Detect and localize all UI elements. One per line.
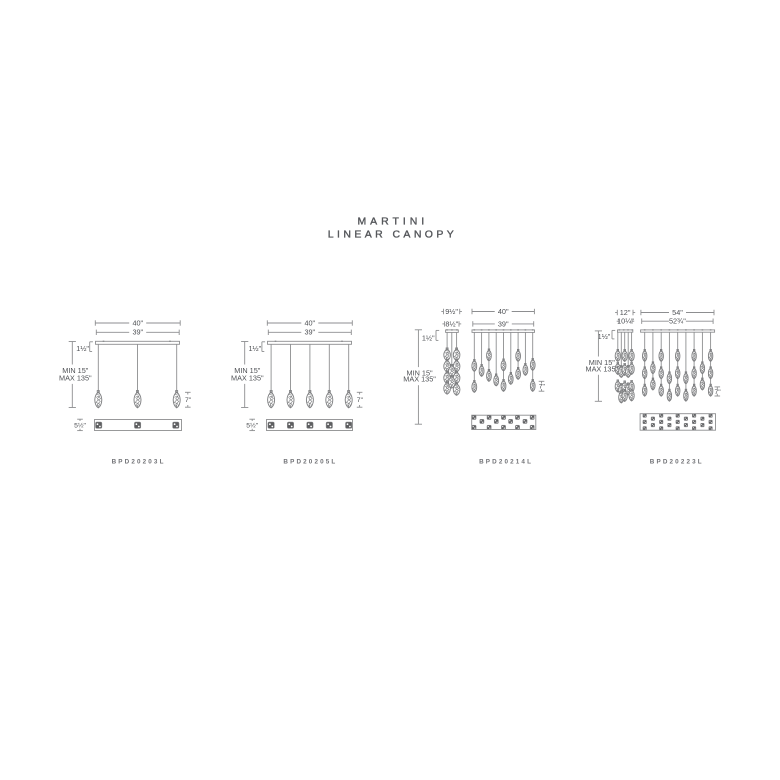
- svg-text:1½": 1½": [248, 344, 261, 353]
- svg-text:39": 39": [498, 319, 509, 328]
- svg-text:10¼": 10¼": [617, 317, 634, 326]
- svg-text:MAX 135": MAX 135": [59, 373, 92, 382]
- svg-text:5½": 5½": [246, 421, 258, 429]
- svg-text:1½": 1½": [422, 334, 435, 343]
- svg-text:MARTINI: MARTINI: [357, 216, 428, 228]
- svg-text:12": 12": [620, 308, 631, 317]
- svg-text:52¾": 52¾": [669, 317, 686, 326]
- svg-text:7": 7": [539, 384, 546, 391]
- svg-text:MAX 135": MAX 135": [231, 373, 264, 382]
- svg-text:BPD20223L: BPD20223L: [650, 459, 704, 466]
- svg-text:LINEAR CANOPY: LINEAR CANOPY: [328, 228, 457, 240]
- svg-text:40": 40": [304, 318, 315, 327]
- svg-text:54": 54": [672, 308, 683, 317]
- svg-text:MAX 135": MAX 135": [403, 375, 436, 384]
- svg-text:1½": 1½": [76, 344, 89, 353]
- svg-text:9½": 9½": [445, 307, 458, 316]
- svg-text:7": 7": [357, 397, 364, 404]
- svg-text:40": 40": [498, 307, 509, 316]
- svg-text:39": 39": [304, 328, 315, 337]
- svg-text:5½": 5½": [74, 421, 86, 429]
- svg-text:BPD20205L: BPD20205L: [283, 459, 337, 466]
- svg-text:MAX 135": MAX 135": [585, 364, 618, 373]
- svg-text:BPD20203L: BPD20203L: [112, 459, 166, 466]
- svg-text:40": 40": [132, 318, 143, 327]
- svg-text:8½": 8½": [445, 319, 458, 328]
- svg-text:7": 7": [714, 389, 721, 396]
- svg-text:1½": 1½": [598, 332, 611, 341]
- svg-text:BPD20214L: BPD20214L: [479, 459, 533, 466]
- svg-text:7": 7": [185, 397, 192, 404]
- svg-text:39": 39": [132, 328, 143, 337]
